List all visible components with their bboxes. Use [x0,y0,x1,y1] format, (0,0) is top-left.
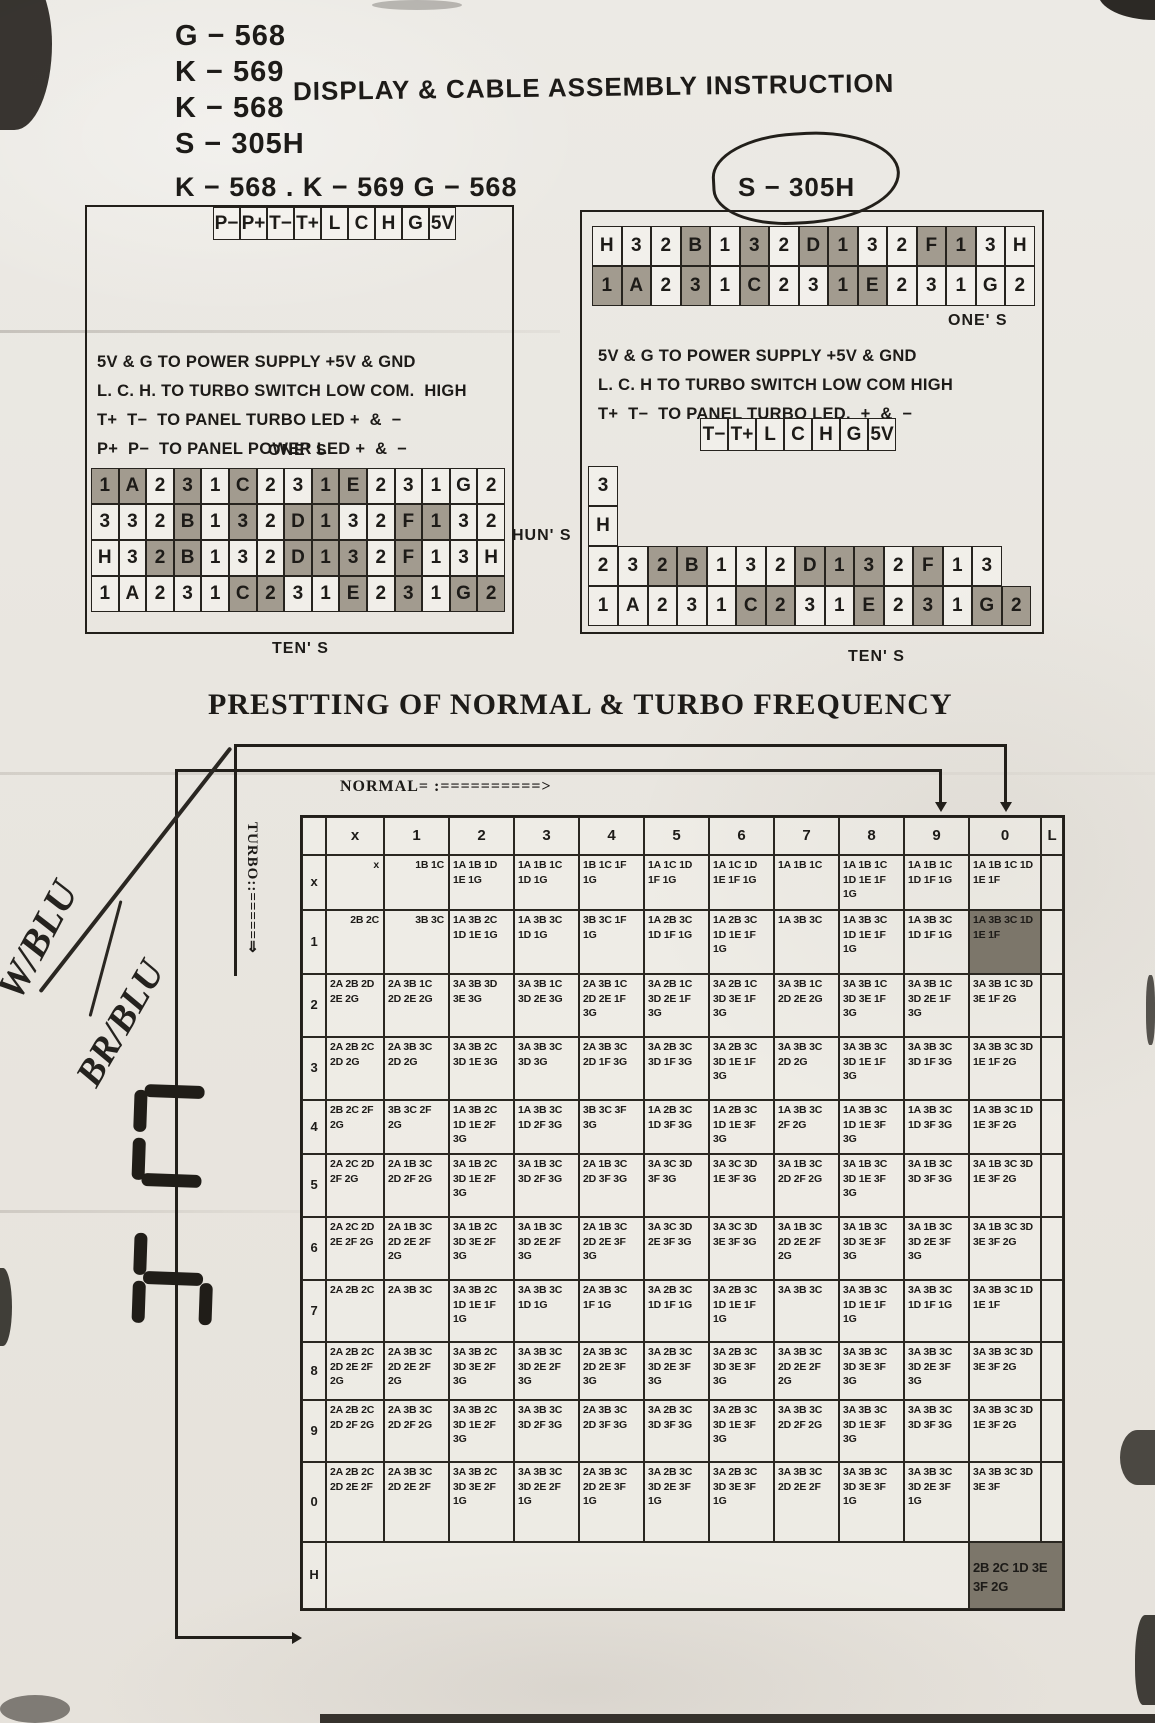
routing-arrow [935,802,947,812]
freq-data-cell: 3A 3B 3C 3D 1E 1F 2G [969,1037,1041,1100]
model-item: G − 568 [175,18,305,54]
grid-cell: 3 [119,540,147,576]
freq-corner-blank [302,817,326,855]
freq-data-cell: 1A 1B 1C 1D 1G [514,855,579,910]
freq-col-header: x [326,817,384,855]
freq-l-cell [1041,1342,1063,1400]
grid-cell: 1 [91,468,119,504]
grid-cell: G [972,586,1002,626]
routing-arrow [292,1632,302,1644]
freq-data-cell: 3A 3B 2C 3D 1E 3G [449,1037,514,1100]
freq-col-header: 3 [514,817,579,855]
left-pin-row: P−P+T−T+LCHG5V [213,207,456,240]
freq-data-cell: 3A 3B 3C [774,1280,839,1342]
freq-data-cell: 1A 3B 3C 2F 2G [774,1100,839,1154]
grid-cell: 2 [769,266,799,306]
freq-data-cell: 2A 1B 3C 2D 3F 3G [579,1154,644,1217]
freq-data-cell: 3A 2B 3C 1D 1F 1G [644,1280,709,1342]
freq-col-header: 6 [709,817,774,855]
freq-data-cell: 3A 1B 3C 3D 2E 2F 3G [514,1217,579,1280]
grid-cell: 2 [367,468,395,504]
grid-cell: 1 [943,586,973,626]
seven-segment-sketch [131,1227,215,1334]
grid-cell: 3 [284,468,312,504]
grid-cell: 3 [618,546,648,586]
grid-cell: 2 [477,576,505,612]
scan-stain [320,1714,1155,1723]
freq-data-cell: 3A 3B 3C 1D 1G [514,1280,579,1342]
routing-arrow [1000,802,1012,812]
segment-E [131,1281,145,1323]
grid-cell: 1 [201,576,229,612]
grid-cell: 1 [946,266,976,306]
grid-cell: 3 [622,226,652,266]
grid-cell: D [284,540,312,576]
freq-data-cell: 3A 1B 3C 2D 2E 2F 2G [774,1217,839,1280]
grid-cell: 2 [257,468,285,504]
grid-cell: 3 [588,466,618,506]
freq-data-cell: 1A 3B 3C 1D 1G [514,910,579,974]
left-grid-row-ones: 1A231C231E231G2 [91,468,505,504]
grid-cell: 1 [710,226,740,266]
grid-cell: A [119,576,147,612]
grid-cell: H [477,540,505,576]
freq-l-cell [1041,1462,1063,1542]
grid-cell: G [450,468,478,504]
grid-cell: C [740,266,770,306]
grid-cell: 2 [367,576,395,612]
grid-cell: 2 [146,576,174,612]
freq-data-cell: 3B 3C 3F 3G [579,1100,644,1154]
routing-line [1004,744,1007,804]
freq-data-cell: 3A 3B 3C 3D 1F 3G [904,1037,969,1100]
freq-l-cell [1041,1100,1063,1154]
grid-cell: 1 [312,540,340,576]
grid-cell: 2 [887,226,917,266]
freq-data-cell: 3A 1B 3C 3D 1E 3F 3G [839,1154,904,1217]
routing-line [175,769,942,772]
grid-cell: E [339,468,367,504]
freq-data-cell: 1A 3B 3C 1D 1F 1G [904,910,969,974]
segment-D [141,1173,201,1188]
freq-data-cell: 1A 1B 1C 1D 1F 1G [904,855,969,910]
grid-cell: 5V [429,207,456,240]
ones-label-right: ONE' S [948,312,1008,330]
scan-stain [1120,1430,1155,1485]
grid-cell: P− [213,207,240,240]
left-grid-row-tens: 1A231C231E231G2 [91,576,505,612]
freq-col-header: L [1041,817,1063,855]
grid-cell: 1 [201,540,229,576]
routing-line [234,744,237,976]
grid-cell: B [677,546,707,586]
grid-cell: 3 [450,504,478,540]
grid-cell: B [681,226,711,266]
freq-data-cell: 3A 3B 3C 3D 1E 3F 3G [839,1400,904,1462]
model-item: S − 305H [175,126,305,162]
freq-data-cell: 2A 2B 2C 2D 2E 2F 2G [326,1342,384,1400]
grid-cell: C [229,468,257,504]
freq-data-cell: 1A 2B 3C 1D 1E 1F 1G [709,910,774,974]
grid-cell: H [375,207,402,240]
freq-data-cell: 3A 1B 3C 3D 1E 3F 2G [969,1154,1041,1217]
freq-data-cell: 3A 3B 3C 3D 2E 2F 3G [514,1342,579,1400]
freq-data-cell: 2A 2C 2D 2F 2G [326,1154,384,1217]
freq-data-cell: 3A 3B 1C 3D 3E 1F 3G [839,974,904,1037]
right-row-ones: 1A231C231E231G2 [592,266,1035,306]
freq-data-cell: 1A 3B 3C 1D 1E 3F 2G [969,1100,1041,1154]
freq-data-cell: 3A 3B 3C 2D 2G [774,1037,839,1100]
freq-data-cell: 1A 1B 1C 1D 1E 1F [969,855,1041,910]
grid-cell: C [348,207,375,240]
right-pin-row: T−T+LCHG5V [700,418,896,451]
freq-row-label: 3 [302,1037,326,1100]
grid-cell: L [756,418,784,451]
grid-cell: F [917,226,947,266]
freq-col-header: 8 [839,817,904,855]
grid-cell: 3 [229,504,257,540]
freq-row-label: 5 [302,1154,326,1217]
freq-data-cell: 3A 2B 3C 3D 3E 3F 3G [709,1342,774,1400]
grid-cell: T− [267,207,294,240]
freq-data-cell: 2A 3B 3C 2D 3F 3G [579,1400,644,1462]
freq-data-cell: 3A 3B 2C 3D 3E 2F 3G [449,1342,514,1400]
grid-cell: 3 [119,504,147,540]
freq-data-cell: 3A 3C 3D 3F 3G [644,1154,709,1217]
grid-cell: 1 [710,266,740,306]
grid-cell: T+ [728,418,756,451]
grid-cell: 1 [312,576,340,612]
scan-stain [1098,0,1155,20]
grid-cell: 2 [477,468,505,504]
normal-direction-label: NORMAL= :==========> [340,778,552,796]
freq-col-header: 7 [774,817,839,855]
grid-cell: G [840,418,868,451]
freq-data-cell: 2A 3B 3C 2D 1F 3G [579,1037,644,1100]
freq-data-cell: 1A 3B 3C 1D 1E 3F 3G [839,1100,904,1154]
grid-cell: 3 [854,546,884,586]
grid-cell: B [174,504,202,540]
grid-cell: 1 [828,226,858,266]
freq-data-cell: 2B 2C [326,910,384,974]
freq-data-cell: 1A 1B 1C [774,855,839,910]
freq-col-header: 4 [579,817,644,855]
freq-data-cell: 3A 3B 3C 2D 2E 2F [774,1462,839,1542]
page-title: DISPLAY & CABLE ASSEMBLY INSTRUCTION [293,68,895,107]
freq-data-cell: 1A 3B 2C 1D 1E 1G [449,910,514,974]
freq-data-cell: 2A 3B 3C 2D 2E 3F 3G [579,1342,644,1400]
right-panel-title: S − 305H [738,172,855,203]
segment-F [133,1233,147,1275]
freq-data-cell: 3A 2B 1C 3D 3E 1F 3G [709,974,774,1037]
grid-cell: H [91,540,119,576]
freq-data-cell: 2A 3B 3C 1F 1G [579,1280,644,1342]
freq-data-cell: 1B 1C 1F 1G [579,855,644,910]
freq-data-cell: 2A 3B 3C 2D 2F 2G [384,1400,449,1462]
grid-cell: 1 [312,468,340,504]
grid-cell: 2 [146,504,174,540]
grid-cell: H [812,418,840,451]
grid-cell: 1 [312,504,340,540]
grid-cell: F [913,546,943,586]
scan-stain [372,0,462,10]
grid-cell: 2 [648,546,678,586]
freq-data-cell: 3A 3B 3C 1D 1E 1F 1G [839,1280,904,1342]
grid-cell: 2 [257,504,285,540]
segment-G [143,1271,203,1286]
freq-row-label: 8 [302,1342,326,1400]
grid-cell: 2 [257,576,285,612]
freq-data-cell: 3A 3B 3C 3D 2E 3F 1G [904,1462,969,1542]
freq-data-cell: 1A 1C 1D 1E 1F 1G [709,855,774,910]
grid-cell: 1 [588,586,618,626]
grid-cell: 3 [339,540,367,576]
freq-l-cell [1041,855,1063,910]
scan-stain [0,1695,70,1723]
model-list: G − 568 K − 569 K − 568 S − 305H [175,18,305,162]
freq-data-cell: 3A 1B 2C 3D 3E 2F 3G [449,1217,514,1280]
freq-data-cell: x [326,855,384,910]
freq-row-label: 7 [302,1280,326,1342]
freq-data-cell: 3A 3B 3C 3D 3G [514,1037,579,1100]
grid-cell: 1 [422,576,450,612]
freq-col-header: 5 [644,817,709,855]
grid-cell: 2 [367,540,395,576]
freq-data-cell: 3A 3B 3C 3D 1E 1F 3G [839,1037,904,1100]
grid-cell: 2 [884,546,914,586]
freq-data-cell: 3A 3B 3C 1D 1E 1F [969,1280,1041,1342]
freq-data-cell: 1A 1C 1D 1F 1G [644,855,709,910]
scan-stain [1146,975,1155,1045]
grid-cell: E [339,576,367,612]
freq-data-cell: 1A 2B 3C 1D 1E 3F 3G [709,1100,774,1154]
seven-segment-sketch [131,1084,215,1191]
grid-cell: 2 [1002,586,1032,626]
freq-col-header: 9 [904,817,969,855]
freq-col-header: 2 [449,817,514,855]
freq-data-cell: 3A 3B 3C 3D 3E 3F 2G [969,1342,1041,1400]
freq-data-cell: 1A 1B 1C 1D 1E 1F 1G [839,855,904,910]
freq-data-cell: 1A 3B 3C 1D 1E 1F 1G [839,910,904,974]
freq-data-cell: 3A 2B 3C 3D 1F 3G [644,1037,709,1100]
model-item: K − 568 [175,90,305,126]
freq-data-cell: 3B 3C 1F 1G [579,910,644,974]
grid-cell: E [858,266,888,306]
right-row-c: 232B132D132F13 [588,546,1002,586]
grid-cell: T− [700,418,728,451]
grid-cell: 3 [450,540,478,576]
grid-cell: 2 [766,546,796,586]
freq-data-cell: 1A 1B 1D 1E 1G [449,855,514,910]
freq-data-cell: 1A 2B 3C 1D 1F 1G [644,910,709,974]
left-panel-title: K − 568 . K − 569 G − 568 [175,172,517,203]
freq-data-cell: 3B 3C [384,910,449,974]
freq-data-cell: 1A 3B 2C 1D 1E 2F 3G [449,1100,514,1154]
grid-cell: 2 [1005,266,1035,306]
tens-label-right: TEN' S [848,648,905,666]
grid-cell: 2 [651,226,681,266]
grid-cell: C [229,576,257,612]
freq-data-cell: 3A 3B 3D 3E 3G [449,974,514,1037]
grid-cell: 2 [257,540,285,576]
freq-data-cell: 2B 2C 2F 2G [326,1100,384,1154]
grid-cell: 2 [648,586,678,626]
grid-cell: A [119,468,147,504]
segment-A [144,1084,204,1099]
freq-row-label: x [302,855,326,910]
grid-cell: 3 [91,504,119,540]
ones-label-left: ONE' S [268,442,328,460]
freq-row-label: 0 [302,1462,326,1542]
freq-data-cell: 3A 2B 1C 3D 2E 1F 3G [644,974,709,1037]
grid-cell: 3 [339,504,367,540]
freq-data-cell: 2A 3B 3C [384,1280,449,1342]
grid-cell: G [402,207,429,240]
routing-line [939,769,942,804]
grid-cell: F [395,540,423,576]
freq-l-cell [1041,1280,1063,1342]
grid-cell: 1 [592,266,622,306]
grid-cell: H [588,506,618,546]
freq-data-cell: 3A 2B 3C 3D 1E 3F 3G [709,1400,774,1462]
paper-crease [0,1210,300,1213]
freq-data-cell: 1A 2B 3C 1D 3F 3G [644,1100,709,1154]
freq-data-cell: 3A 2B 3C 3D 3E 3F 1G [709,1462,774,1542]
grid-cell: 1 [707,546,737,586]
grid-cell: 3 [740,226,770,266]
grid-cell: D [795,546,825,586]
segment-C [198,1283,212,1325]
freq-data-cell: 3A 3B 1C 2D 2E 2G [774,974,839,1037]
paper-crease [0,772,1155,775]
freq-row-label: H [302,1542,326,1609]
tens-label-left: TEN' S [272,640,329,658]
freq-data-cell: 2A 1B 3C 2D 2E 3F 3G [579,1217,644,1280]
grid-cell: 1 [707,586,737,626]
grid-cell: 1 [825,586,855,626]
grid-cell: 3 [976,226,1006,266]
grid-cell: F [395,504,423,540]
freq-data-cell: 3A 3B 1C 3D 3E 1F 2G [969,974,1041,1037]
grid-cell: 2 [146,468,174,504]
scan-stain [0,1268,12,1346]
grid-cell: 2 [887,266,917,306]
freq-col-header: 0 [969,817,1041,855]
freq-data-cell: 2A 2B 2D 2E 2G [326,974,384,1037]
freq-data-cell: 3A 3B 1C 3D 2E 1F 3G [904,974,969,1037]
freq-data-cell: 3A 3B 2C 3D 1E 2F 3G [449,1400,514,1462]
left-grid-row-huns: H32B132D132F13H [91,540,505,576]
freq-data-cell: 3A 3B 3C 3D 2F 3G [514,1400,579,1462]
freq-col-header: 1 [384,817,449,855]
grid-cell: 1 [422,504,450,540]
freq-l-cell [1041,1037,1063,1100]
grid-cell: C [736,586,766,626]
grid-cell: L [321,207,348,240]
freq-l-cell [1041,974,1063,1037]
freq-data-cell: 1A 3B 3C 1D 2F 3G [514,1100,579,1154]
freq-data-cell: 3A 3B 3C 3D 3E 3F 1G [839,1462,904,1542]
grid-cell: 2 [766,586,796,626]
grid-cell: 2 [477,504,505,540]
scanned-instruction-sheet: G − 568 K − 569 K − 568 S − 305H DISPLAY… [0,0,1155,1723]
grid-cell: 1 [422,540,450,576]
grid-cell: 1 [943,546,973,586]
grid-cell: 3 [174,576,202,612]
grid-cell: H [1005,226,1035,266]
freq-data-cell: 2A 3B 3C 2D 2E 2F [384,1462,449,1542]
grid-cell: C [784,418,812,451]
grid-cell: 3 [913,586,943,626]
freq-data-cell: 3A 1B 3C 3D 2F 3G [514,1154,579,1217]
freq-data-cell: 3A 3B 3C 3D 1E 3F 2G [969,1400,1041,1462]
freq-data-cell: 3A 1B 3C 3D 3E 3F 3G [839,1217,904,1280]
freq-data-cell: 3A 3B 2C 1D 1E 1F 1G [449,1280,514,1342]
grid-cell: B [174,540,202,576]
grid-cell: 3 [395,576,423,612]
grid-cell: 3 [736,546,766,586]
freq-row-label: 1 [302,910,326,974]
grid-cell: A [618,586,648,626]
grid-cell: 3 [917,266,947,306]
grid-cell: 3 [795,586,825,626]
grid-cell: 2 [884,586,914,626]
freq-l-cell [1041,910,1063,974]
freq-data-cell: 3A 3B 3C 2D 2F 2G [774,1400,839,1462]
grid-cell: 1 [201,468,229,504]
grid-cell: 2 [146,540,174,576]
freq-title: PRESTTING OF NORMAL & TURBO FREQUENCY [208,688,953,722]
grid-cell: H [592,226,622,266]
grid-cell: 3 [229,540,257,576]
freq-data-cell: 3A 3B 3C 3D 3F 3G [904,1400,969,1462]
grid-cell: 1 [828,266,858,306]
left-grid-row-2: 332B132D132F132 [91,504,505,540]
grid-cell: 2 [588,546,618,586]
freq-data-cell: 3A 3B 3C 3D 3E 3F 3G [839,1342,904,1400]
freq-data-cell: 3A 1B 3C 3D 2E 3F 3G [904,1217,969,1280]
freq-data-cell: 3A 2B 3C 3D 2E 3F 1G [644,1462,709,1542]
freq-table: x1234567890Lxx1B 1C1A 1B 1D 1E 1G1A 1B 1… [300,815,1065,1611]
freq-data-cell: 2A 2B 2C 2D 2F 2G [326,1400,384,1462]
grid-cell: D [799,226,829,266]
freq-data-cell: 1A 3B 3C 1D 3F 3G [904,1100,969,1154]
grid-cell: 3 [972,546,1002,586]
freq-data-cell: 2A 2B 2C 2D 2G [326,1037,384,1100]
freq-data-cell: 3A 3B 3C 2D 2E 2F 2G [774,1342,839,1400]
grid-cell: 3 [284,576,312,612]
freq-data-cell: 2A 1B 3C 2D 2F 2G [384,1154,449,1217]
freq-data-cell: 3A 3B 3C 3D 2E 2F 1G [514,1462,579,1542]
freq-data-cell: 2A 3B 3C 2D 2E 2F 2G [384,1342,449,1400]
freq-data-cell: 3A 3B 1C 3D 2E 3G [514,974,579,1037]
freq-data-cell: 2A 3B 1C 2D 2E 1F 3G [579,974,644,1037]
freq-data-cell: 3A 2B 3C 1D 1E 1F 1G [709,1280,774,1342]
freq-data-cell: 3A 3C 3D 3E 3F 3G [709,1217,774,1280]
grid-cell: E [854,586,884,626]
grid-cell: A [622,266,652,306]
grid-cell: 5V [868,418,896,451]
freq-l-cell [1041,1400,1063,1462]
scan-stain [1135,1615,1155,1705]
freq-data-cell: 3A 2B 3C 3D 1E 1F 3G [709,1037,774,1100]
routing-line [235,744,1007,747]
grid-cell: 3 [681,266,711,306]
right-stack-3: 3H [588,466,618,546]
freq-row-label: 2 [302,974,326,1037]
freq-data-cell: 2A 3B 1C 2D 2E 2G [384,974,449,1037]
grid-cell: 1 [91,576,119,612]
